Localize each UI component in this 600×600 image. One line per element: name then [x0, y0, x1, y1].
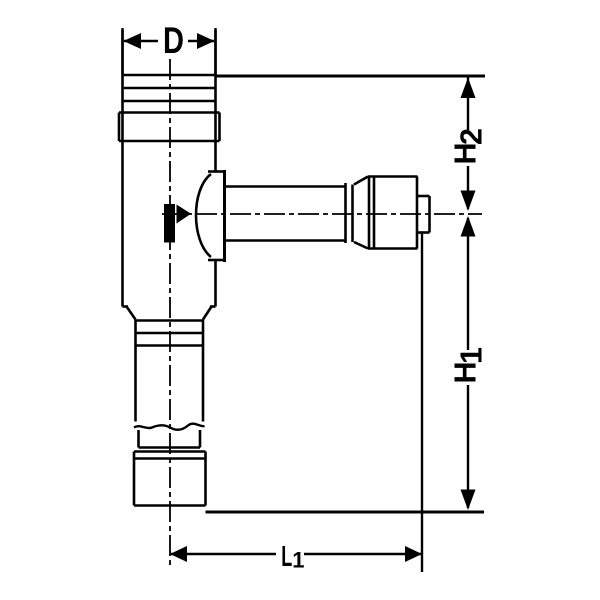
svg-text:D: D [163, 20, 184, 61]
svg-text:1: 1 [292, 548, 304, 573]
svg-text:L: L [281, 541, 292, 573]
